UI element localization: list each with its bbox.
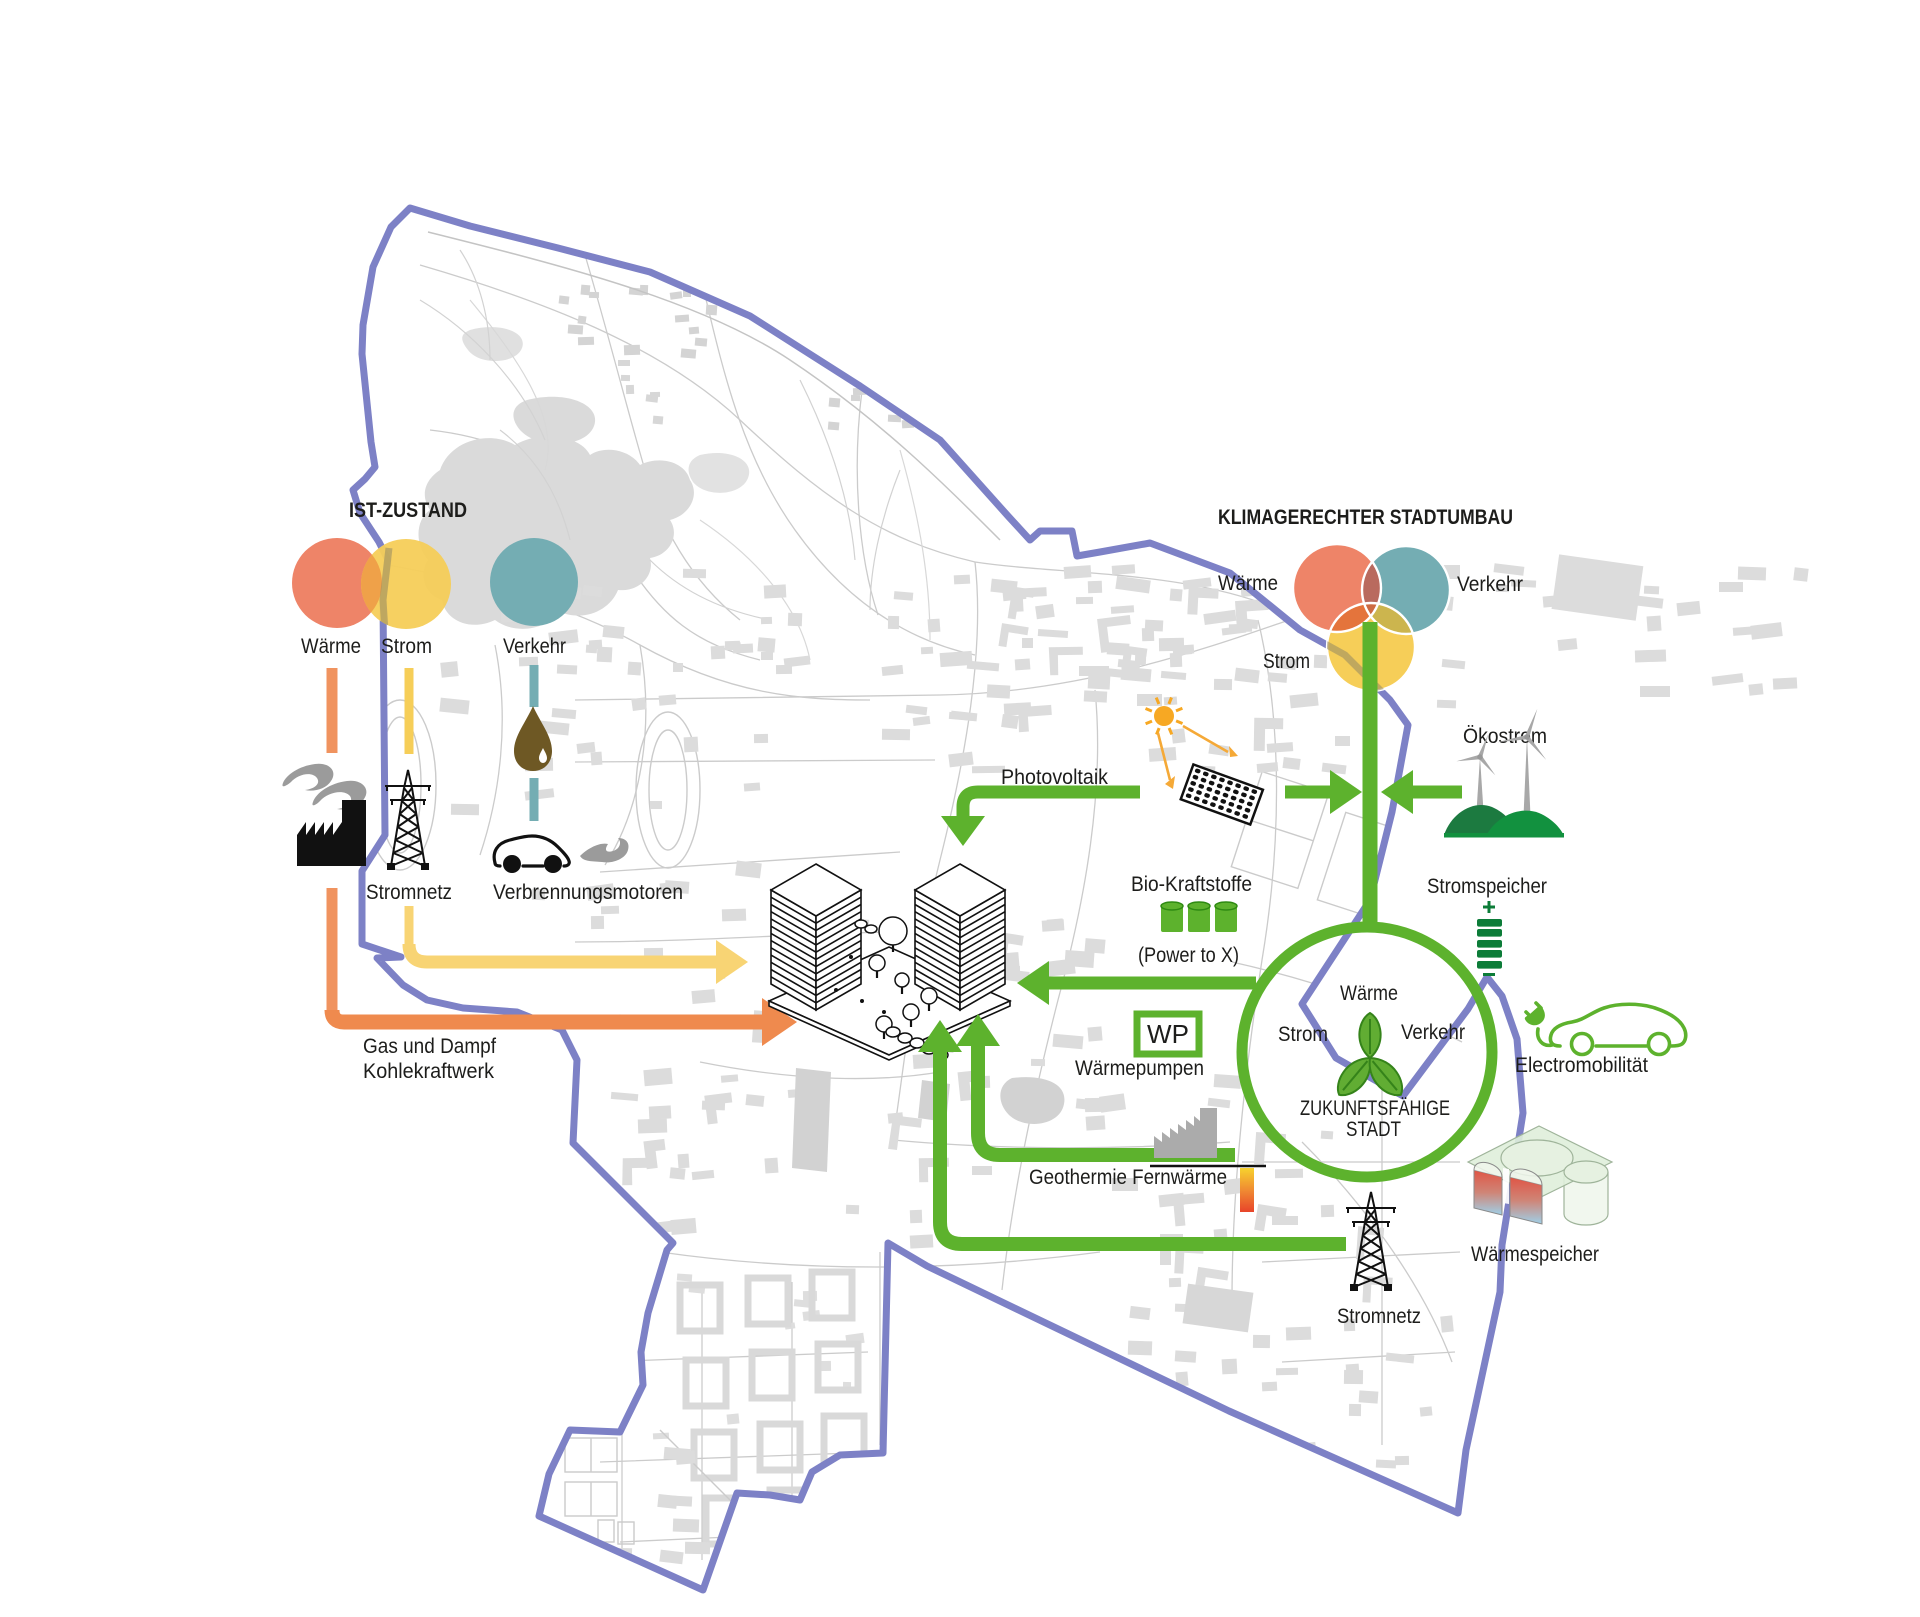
svg-text:Wärmepumpen: Wärmepumpen (1075, 1057, 1204, 1080)
svg-text:Verkehr: Verkehr (503, 635, 566, 658)
svg-text:Verkehr: Verkehr (1457, 573, 1523, 596)
svg-text:Stromnetz: Stromnetz (1337, 1305, 1421, 1328)
svg-text:Kohlekraftwerk: Kohlekraftwerk (363, 1060, 494, 1083)
svg-text:Wärme: Wärme (301, 635, 361, 658)
svg-text:Stromspeicher: Stromspeicher (1427, 875, 1547, 898)
svg-text:STADT: STADT (1346, 1118, 1401, 1141)
svg-text:Gas und Dampf: Gas und Dampf (363, 1035, 496, 1058)
svg-text:ZUKUNFTSFÄHIGE: ZUKUNFTSFÄHIGE (1300, 1097, 1450, 1120)
svg-text:Wärmespeicher: Wärmespeicher (1471, 1243, 1599, 1266)
svg-text:Strom: Strom (1278, 1023, 1328, 1046)
svg-text:KLIMAGERECHTER STADTUMBAU: KLIMAGERECHTER STADTUMBAU (1218, 506, 1513, 529)
svg-text:Strom: Strom (381, 635, 432, 658)
svg-text:Wärme: Wärme (1340, 982, 1398, 1005)
svg-text:Electromobilität: Electromobilität (1515, 1054, 1648, 1077)
svg-text:Verbrennungsmotoren: Verbrennungsmotoren (493, 881, 683, 904)
svg-text:IST-ZUSTAND: IST-ZUSTAND (349, 499, 467, 522)
svg-text:Wärme: Wärme (1218, 572, 1278, 595)
svg-text:Bio-Kraftstoffe: Bio-Kraftstoffe (1131, 873, 1252, 896)
svg-text:Stromnetz: Stromnetz (366, 881, 452, 904)
svg-text:Strom: Strom (1263, 650, 1310, 673)
svg-text:(Power to X): (Power to X) (1138, 944, 1239, 967)
svg-text:Photovoltaik: Photovoltaik (1001, 766, 1108, 789)
svg-text:Geothermie Fernwärme: Geothermie Fernwärme (1029, 1166, 1227, 1189)
svg-text:WP: WP (1147, 1019, 1189, 1049)
svg-text:Verkehr: Verkehr (1401, 1021, 1465, 1044)
